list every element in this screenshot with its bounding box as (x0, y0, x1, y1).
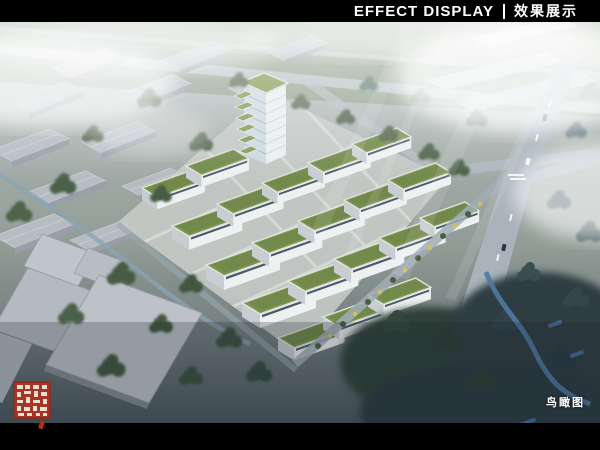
header-divider-line (503, 4, 505, 19)
aerial-render-image: 鸟瞰图 (0, 22, 600, 423)
header-title-zh: 效果展示 (514, 1, 578, 21)
header-bar: EFFECT DISPLAY 效果展示 (0, 0, 600, 22)
aerial-render-svg (0, 22, 600, 423)
seal-stamp-icon (13, 381, 51, 419)
birdseye-caption: 鸟瞰图 (546, 394, 585, 410)
header-title-en: EFFECT DISPLAY (354, 3, 494, 20)
footer-bar (0, 423, 600, 450)
